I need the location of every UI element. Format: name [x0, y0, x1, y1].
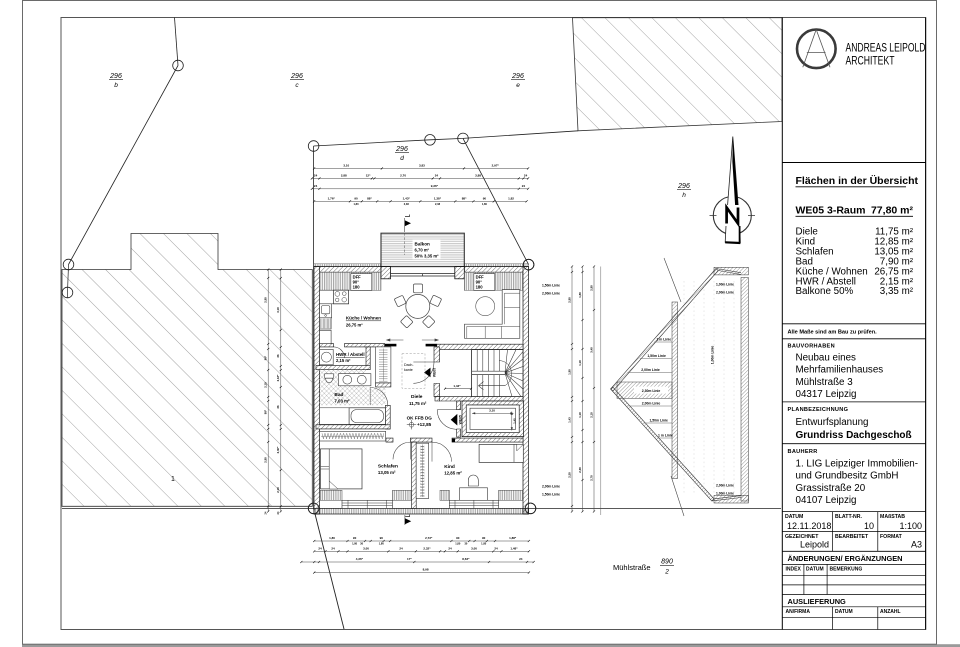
svg-text:+12,85: +12,85: [417, 422, 432, 427]
svg-text:ÄNDERUNGEN/ ERGÄNZUNGEN: ÄNDERUNGEN/ ERGÄNZUNGEN: [788, 554, 903, 563]
svg-text:Mehrfamilienhauses: Mehrfamilienhauses: [796, 365, 884, 376]
svg-text:24: 24: [519, 557, 523, 561]
svg-text:FORMAT: FORMAT: [880, 534, 903, 540]
svg-text:1,76⁶: 1,76⁶: [328, 196, 336, 200]
svg-text:2,32⁶: 2,32⁶: [423, 546, 431, 550]
svg-text:BAUVORHABEN: BAUVORHABEN: [788, 344, 835, 350]
svg-text:90: 90: [353, 536, 357, 540]
svg-text:2,78: 2,78: [590, 475, 594, 481]
svg-text:296: 296: [290, 73, 303, 80]
svg-text:1,88: 1,88: [568, 369, 572, 375]
svg-text:Kind: Kind: [444, 464, 455, 470]
svg-text:3,18: 3,18: [276, 307, 280, 313]
svg-text:1:100: 1:100: [899, 521, 922, 531]
svg-text:BEMERKUNG: BEMERKUNG: [830, 567, 863, 573]
svg-text:1,80: 1,80: [352, 542, 358, 546]
svg-text:24: 24: [331, 546, 335, 550]
svg-text:Flächen in der Übersicht: Flächen in der Übersicht: [796, 174, 919, 187]
svg-text:2,00m Linie: 2,00m Linie: [716, 291, 734, 295]
svg-text:2,72⁶: 2,72⁶: [425, 536, 433, 540]
svg-text:2,00m Linie: 2,00m Linie: [716, 484, 734, 488]
svg-text:1,88: 1,88: [578, 292, 582, 298]
svg-text:2,18: 2,18: [590, 412, 594, 418]
svg-text:Mühlstraße: Mühlstraße: [613, 563, 651, 572]
svg-text:AN/FIRMA: AN/FIRMA: [786, 609, 811, 615]
svg-text:WE05: WE05: [433, 368, 437, 377]
svg-text:2: 2: [664, 569, 669, 576]
svg-text:2,88: 2,88: [341, 173, 347, 177]
svg-text:MAßSTAB: MAßSTAB: [880, 514, 905, 520]
svg-text:3,10: 3,10: [489, 409, 495, 413]
svg-text:24: 24: [522, 184, 526, 188]
svg-text:36: 36: [276, 405, 280, 409]
svg-text:BLATT-NR.: BLATT-NR.: [835, 514, 863, 520]
svg-text:1,80: 1,80: [353, 202, 359, 206]
svg-text:2,18: 2,18: [276, 487, 280, 493]
svg-text:2,70: 2,70: [400, 173, 406, 177]
svg-text:88⁶: 88⁶: [264, 355, 268, 360]
svg-text:A3: A3: [911, 540, 922, 550]
svg-text:2,38: 2,38: [404, 202, 410, 206]
svg-text:26,75 m²: 26,75 m²: [346, 323, 363, 328]
svg-text:04317 Leipzig: 04317 Leipzig: [796, 389, 857, 400]
svg-text:ANDREAS LEIPOLD: ANDREAS LEIPOLD: [846, 41, 926, 55]
svg-text:2,00m Linie: 2,00m Linie: [542, 485, 560, 489]
svg-text:h: h: [682, 192, 686, 199]
svg-text:3,88: 3,88: [475, 173, 481, 177]
svg-text:WE05: WE05: [459, 415, 463, 424]
svg-text:1,80: 1,80: [481, 542, 487, 546]
svg-text:1,00m Linie: 1,00m Linie: [716, 283, 734, 287]
svg-text:1,00m Linie: 1,00m Linie: [716, 492, 734, 496]
svg-text:90: 90: [354, 196, 358, 200]
svg-text:9,36⁶: 9,36⁶: [431, 184, 439, 188]
svg-text:88⁶: 88⁶: [367, 196, 372, 200]
svg-text:3,10: 3,10: [343, 163, 349, 167]
svg-text:2,97⁶: 2,97⁶: [492, 163, 500, 167]
svg-text:24: 24: [524, 173, 528, 177]
svg-text:1,80: 1,80: [482, 202, 488, 206]
svg-text:13,05 m²: 13,05 m²: [378, 470, 396, 475]
svg-text:b: b: [114, 82, 118, 89]
svg-text:296: 296: [677, 183, 690, 190]
svg-text:3,83: 3,83: [419, 163, 425, 167]
svg-text:90: 90: [456, 536, 460, 540]
svg-text:3,00: 3,00: [471, 546, 477, 550]
svg-text:1,88⁶: 1,88⁶: [509, 536, 517, 540]
svg-text:Alle Maße sind am Bau zu prüfe: Alle Maße sind am Bau zu prüfen.: [788, 330, 878, 336]
svg-text:DATUM: DATUM: [835, 609, 853, 615]
svg-text:3,35 m²: 3,35 m²: [880, 286, 914, 297]
svg-text:AUSLIEFERUNG: AUSLIEFERUNG: [788, 597, 847, 606]
svg-text:17⁶: 17⁶: [407, 557, 412, 561]
svg-text:180: 180: [476, 285, 484, 290]
svg-text:e: e: [516, 82, 520, 89]
svg-text:1,50m Linie: 1,50m Linie: [542, 493, 560, 497]
svg-text:Mühlstraße 3: Mühlstraße 3: [796, 377, 854, 388]
svg-text:3,00: 3,00: [363, 546, 369, 550]
svg-text:24: 24: [435, 173, 439, 177]
svg-text:OK FFB DG: OK FFB DG: [407, 416, 433, 421]
svg-text:DATUM: DATUM: [785, 514, 803, 520]
svg-text:Diele: Diele: [411, 394, 423, 400]
svg-text:24: 24: [494, 546, 498, 550]
svg-text:1,18: 1,18: [578, 412, 582, 418]
svg-text:4,36⁶: 4,36⁶: [356, 557, 364, 561]
svg-text:12,85 m²: 12,85 m²: [444, 470, 462, 475]
svg-text:kante: kante: [404, 368, 413, 372]
svg-text:2,88: 2,88: [264, 457, 268, 463]
svg-text:3,48: 3,48: [590, 347, 594, 353]
svg-text:50% 3,35 m²: 50% 3,35 m²: [415, 253, 440, 258]
svg-text:1,80: 1,80: [379, 542, 385, 546]
svg-text:296: 296: [109, 73, 122, 80]
svg-text:ARCHITEKT: ARCHITEKT: [846, 54, 895, 68]
svg-text:12.11.2018: 12.11.2018: [787, 521, 831, 531]
svg-text:8,98: 8,98: [423, 568, 429, 572]
svg-text:90: 90: [483, 196, 487, 200]
svg-text:1,50m Linie: 1,50m Linie: [542, 284, 560, 288]
svg-text:2,38: 2,38: [435, 202, 441, 206]
svg-text:1: 1: [171, 476, 175, 483]
svg-text:24: 24: [314, 184, 318, 188]
svg-text:2,30m Linie: 2,30m Linie: [642, 389, 661, 393]
svg-text:11,75 m²: 11,75 m²: [409, 401, 427, 406]
svg-text:2,15 m²: 2,15 m²: [336, 358, 351, 363]
svg-text:ANZAHL: ANZAHL: [880, 609, 901, 615]
svg-text:1 m Linie: 1 m Linie: [658, 434, 673, 438]
svg-text:Küche / Wohnen: Küche / Wohnen: [346, 316, 381, 321]
svg-text:88⁶: 88⁶: [462, 196, 467, 200]
svg-text:1,18: 1,18: [578, 360, 582, 366]
svg-text:und Grundbesitz GmbH: und Grundbesitz GmbH: [796, 471, 899, 482]
svg-text:24: 24: [314, 173, 318, 177]
svg-text:1,00m Linie: 1,00m Linie: [711, 346, 715, 365]
svg-text:DATUM: DATUM: [806, 567, 824, 573]
svg-text:Grassistraße 20: Grassistraße 20: [796, 483, 866, 494]
svg-text:04107 Leipzig: 04107 Leipzig: [796, 495, 857, 506]
svg-text:296: 296: [511, 73, 524, 80]
svg-text:1,43: 1,43: [568, 417, 572, 423]
svg-text:Grundriss Dachgeschoß: Grundriss Dachgeschoß: [796, 430, 912, 441]
svg-text:2,18: 2,18: [264, 382, 268, 388]
svg-text:Entwurfsplanung: Entwurfsplanung: [796, 417, 869, 428]
svg-text:d: d: [400, 155, 404, 162]
svg-text:890: 890: [661, 559, 673, 566]
svg-text:8,62⁶: 8,62⁶: [462, 557, 470, 561]
svg-text:2,88: 2,88: [264, 297, 268, 303]
svg-text:90: 90: [482, 536, 486, 540]
svg-text:36: 36: [276, 354, 280, 358]
svg-text:2,00m Linie: 2,00m Linie: [641, 368, 660, 372]
svg-text:6,70 m²: 6,70 m²: [415, 247, 430, 252]
svg-text:180: 180: [353, 285, 361, 290]
svg-text:Neubau eines: Neubau eines: [796, 353, 857, 364]
svg-text:HWR / Abstell: HWR / Abstell: [336, 352, 365, 357]
svg-text:Bad: Bad: [334, 392, 343, 398]
svg-text:2,30⁶: 2,30⁶: [276, 446, 280, 453]
svg-text:7,03 m²: 7,03 m²: [334, 399, 350, 404]
svg-text:88⁶: 88⁶: [264, 409, 268, 414]
svg-text:10: 10: [864, 521, 874, 531]
svg-text:1,50m Linie: 1,50m Linie: [647, 354, 666, 358]
svg-text:1,43⁶: 1,43⁶: [403, 196, 411, 200]
svg-text:296: 296: [395, 146, 408, 153]
svg-text:Dach-: Dach-: [404, 363, 414, 367]
svg-text:1,43⁶: 1,43⁶: [453, 384, 461, 388]
svg-text:WE05 3-Raum: WE05 3-Raum: [796, 205, 866, 217]
svg-text:Balkone 50%: Balkone 50%: [796, 286, 854, 297]
svg-text:12⁶: 12⁶: [366, 173, 371, 177]
svg-text:90: 90: [380, 536, 384, 540]
svg-text:Schlafen: Schlafen: [378, 463, 398, 469]
svg-text:2,88: 2,88: [568, 297, 572, 303]
svg-text:INDEX: INDEX: [786, 567, 802, 573]
svg-text:2,88: 2,88: [590, 285, 594, 291]
svg-text:BEARBEITET: BEARBEITET: [835, 534, 869, 540]
svg-text:1,80: 1,80: [329, 536, 335, 540]
svg-text:2,00m Linie: 2,00m Linie: [642, 402, 661, 406]
svg-text:24: 24: [448, 546, 452, 550]
svg-text:1 m Linie: 1 m Linie: [656, 338, 671, 342]
svg-text:1. LIG Leipziger Immobilien-: 1. LIG Leipziger Immobilien-: [796, 459, 919, 470]
svg-text:BAUHERR: BAUHERR: [788, 449, 818, 455]
svg-text:2,58: 2,58: [568, 472, 572, 478]
svg-text:1,80: 1,80: [455, 542, 461, 546]
svg-text:1,40: 1,40: [512, 418, 516, 424]
svg-text:24: 24: [399, 546, 403, 550]
svg-text:1,50m Linie: 1,50m Linie: [649, 419, 668, 423]
svg-text:24: 24: [318, 546, 322, 550]
svg-text:Balkon: Balkon: [415, 241, 431, 246]
svg-text:1,38⁶: 1,38⁶: [434, 196, 442, 200]
svg-text:1,48⁶: 1,48⁶: [510, 546, 518, 550]
svg-text:1,82: 1,82: [508, 196, 514, 200]
svg-text:2,00m Linie: 2,00m Linie: [542, 292, 560, 296]
svg-text:Leipold: Leipold: [800, 540, 829, 550]
svg-text:2,38: 2,38: [578, 467, 582, 473]
svg-text:2,18⁶: 2,18⁶: [276, 374, 280, 381]
svg-text:PLANBEZEICHNUNG: PLANBEZEICHNUNG: [788, 407, 849, 413]
svg-text:77,80 m²: 77,80 m²: [871, 205, 914, 217]
